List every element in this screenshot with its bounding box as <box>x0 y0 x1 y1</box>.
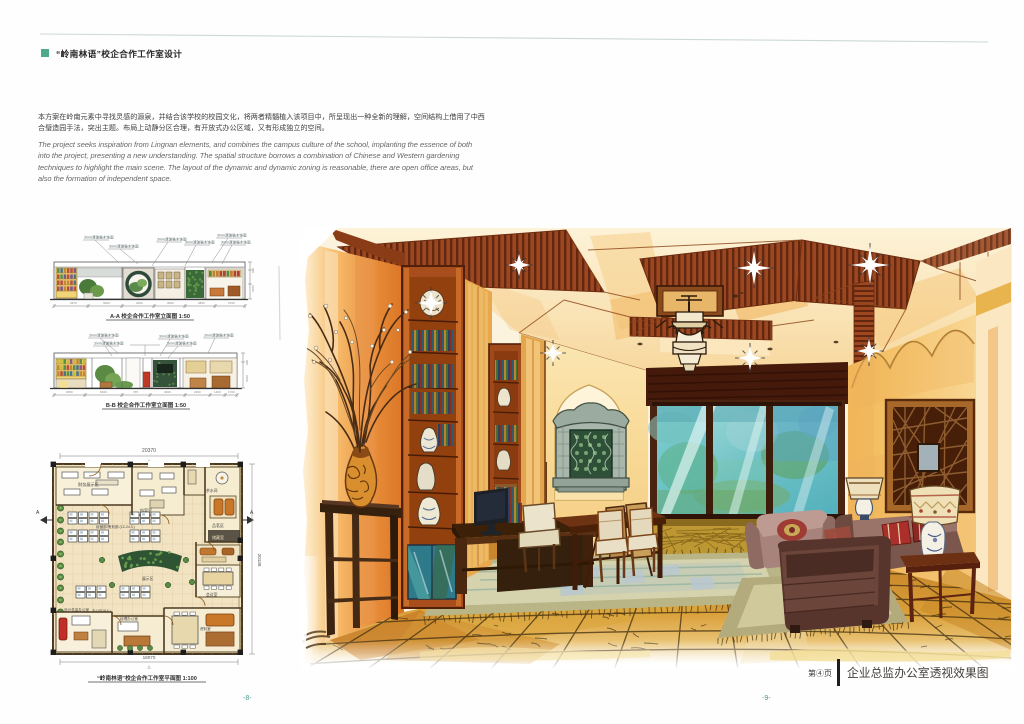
svg-text:“岭南林语”校企合作工作室平面图 1:100: “岭南林语”校企合作工作室平面图 1:100 <box>97 674 197 682</box>
svg-text:3mm清玻猫木饰面: 3mm清玻猫木饰面 <box>84 234 114 239</box>
svg-text:900: 900 <box>251 268 255 273</box>
svg-text:储藏室: 储藏室 <box>212 534 224 540</box>
svg-text:3mm清玻猫木饰面: 3mm清玻猫木饰面 <box>204 332 234 337</box>
svg-text:1400: 1400 <box>214 390 221 394</box>
svg-text:6200: 6200 <box>100 390 107 394</box>
svg-text:会议室: 会议室 <box>206 592 218 597</box>
svg-text:△: △ <box>147 664 151 669</box>
svg-text:3mm清玻猫木饰面: 3mm清玻猫木饰面 <box>89 332 119 337</box>
svg-text:4300: 4300 <box>164 390 171 394</box>
svg-text:1700: 1700 <box>228 390 235 394</box>
svg-text:900: 900 <box>245 360 249 365</box>
svg-text:18070: 18070 <box>143 655 156 660</box>
svg-text:A-A 校企合作工作室立面图 1:50: A-A 校企合作工作室立面图 1:50 <box>110 312 190 320</box>
svg-text:3000: 3000 <box>167 301 174 305</box>
svg-text:2800: 2800 <box>198 301 205 305</box>
svg-text:3mm清玻猫木饰面: 3mm清玻猫木饰面 <box>217 232 247 237</box>
svg-text:展示区: 展示区 <box>142 576 154 581</box>
svg-text:2100: 2100 <box>251 285 255 292</box>
svg-text:20138: 20138 <box>257 554 262 567</box>
svg-text:3200: 3200 <box>103 301 110 305</box>
svg-text:3mm清玻猫木饰面: 3mm清玻猫木饰面 <box>94 340 124 345</box>
svg-text:B-B 校企合作工作室立面图 1:50: B-B 校企合作工作室立面图 1:50 <box>106 401 186 409</box>
svg-text:2400: 2400 <box>245 375 249 382</box>
svg-text:财务展示区: 财务展示区 <box>78 481 99 488</box>
svg-text:茶水间: 茶水间 <box>206 488 218 493</box>
svg-text:3mm清玻猫木饰面: 3mm清玻猫木饰面 <box>159 333 189 338</box>
svg-text:2760: 2760 <box>228 301 235 305</box>
svg-text:2400: 2400 <box>194 390 201 394</box>
svg-text:A: A <box>36 510 40 516</box>
svg-text:2400: 2400 <box>136 301 143 305</box>
svg-text:745: 745 <box>133 390 138 394</box>
svg-text:资料室: 资料室 <box>200 626 211 631</box>
svg-text:3mm清玻猫木饰面: 3mm清玻猫木饰面 <box>167 340 197 345</box>
svg-text:3mm清玻猫木饰面: 3mm清玻猫木饰面 <box>221 239 251 244</box>
svg-text:2970: 2970 <box>70 301 77 305</box>
svg-text:3mm清玻猫木饰面: 3mm清玻猫木饰面 <box>109 243 139 248</box>
svg-text:经营部/策划部 (12-24人): 经营部/策划部 (12-24人) <box>96 524 135 529</box>
svg-text:3mm清玻猫木饰面: 3mm清玻猫木饰面 <box>157 236 187 241</box>
svg-text:20370: 20370 <box>142 448 156 454</box>
svg-text:品茗区: 品茗区 <box>212 522 224 528</box>
svg-text:3050: 3050 <box>66 390 73 394</box>
svg-text:3mm清玻猫木饰面: 3mm清玻猫木饰面 <box>185 239 215 244</box>
